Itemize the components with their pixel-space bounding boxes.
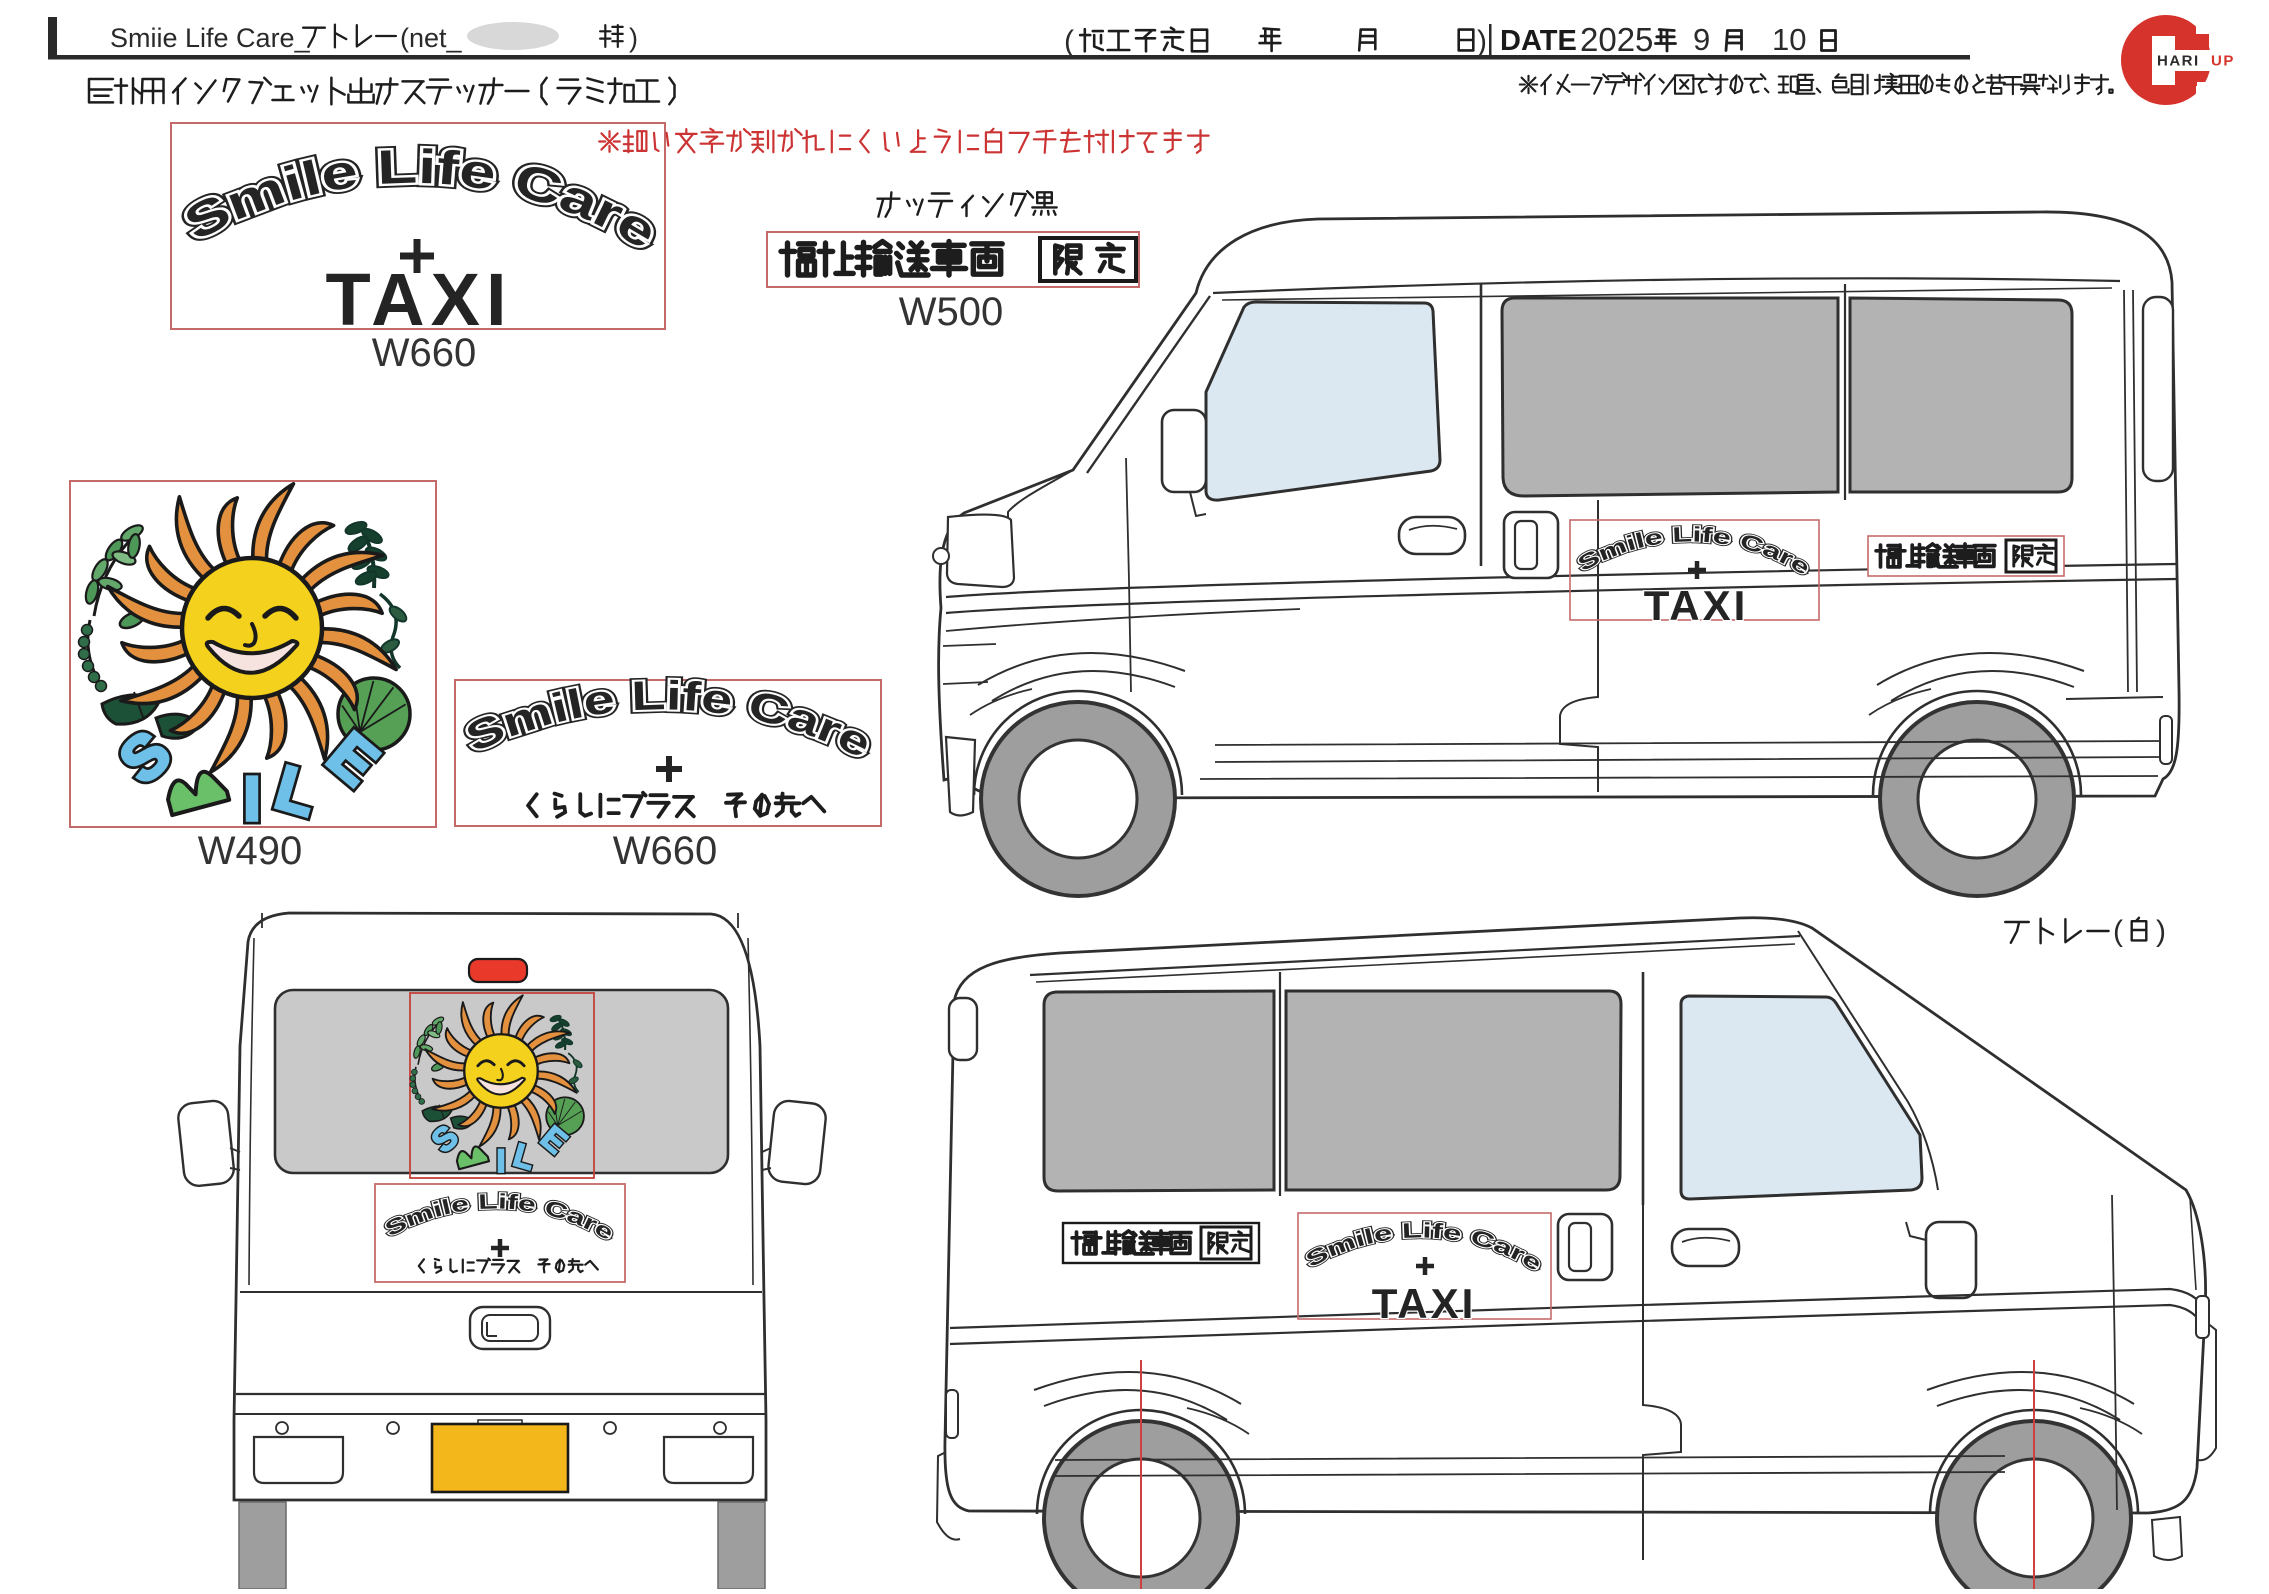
svg-text:Smiie Life Care_: Smiie Life Care_: [110, 23, 311, 53]
svg-text:UP: UP: [2211, 53, 2235, 70]
svg-text:W660: W660: [613, 829, 718, 873]
svg-text:10: 10: [1772, 22, 1806, 57]
svg-text:TAXI: TAXI: [325, 258, 512, 341]
svg-text:W660: W660: [372, 331, 477, 375]
svg-text:): ): [1477, 25, 1487, 58]
svg-text:DATE: DATE: [1500, 25, 1577, 57]
svg-text:): ): [629, 23, 638, 53]
svg-text:): ): [2156, 915, 2166, 948]
svg-text:TAXI: TAXI: [1372, 1280, 1477, 1327]
svg-text:TAXI: TAXI: [1644, 582, 1749, 629]
svg-text:W490: W490: [198, 829, 303, 873]
svg-text:9: 9: [1693, 22, 1710, 57]
svg-text:I: I: [243, 765, 260, 834]
svg-text:(: (: [1064, 25, 1074, 58]
svg-text:W500: W500: [899, 290, 1004, 334]
svg-text:HARI: HARI: [2157, 53, 2200, 70]
svg-text:(: (: [2113, 915, 2123, 948]
svg-text:2025: 2025: [1580, 21, 1653, 58]
svg-text:I: I: [496, 1143, 505, 1179]
svg-text:(net_: (net_: [400, 23, 463, 53]
